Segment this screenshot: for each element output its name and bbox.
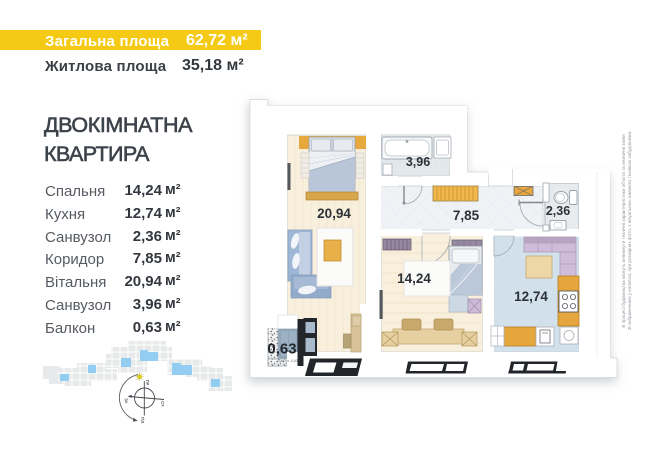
svg-text:3,96: 3,96 [406,155,430,169]
svg-text:Зх: Зх [124,398,130,404]
svg-text:20,94: 20,94 [317,206,351,221]
svg-text:14,24: 14,24 [397,271,431,286]
svg-text:Сх: Сх [160,401,166,408]
svg-text:7,85: 7,85 [453,208,480,223]
svg-text:0,63: 0,63 [267,341,296,358]
svg-text:12,74: 12,74 [514,289,548,304]
svg-text:Пн: Пн [145,379,151,386]
svg-text:Бал.пл.-0,63: Бал.пл.-0,63 [278,359,298,363]
svg-text:2,36: 2,36 [546,204,570,218]
svg-text:Пд: Пд [140,417,146,424]
